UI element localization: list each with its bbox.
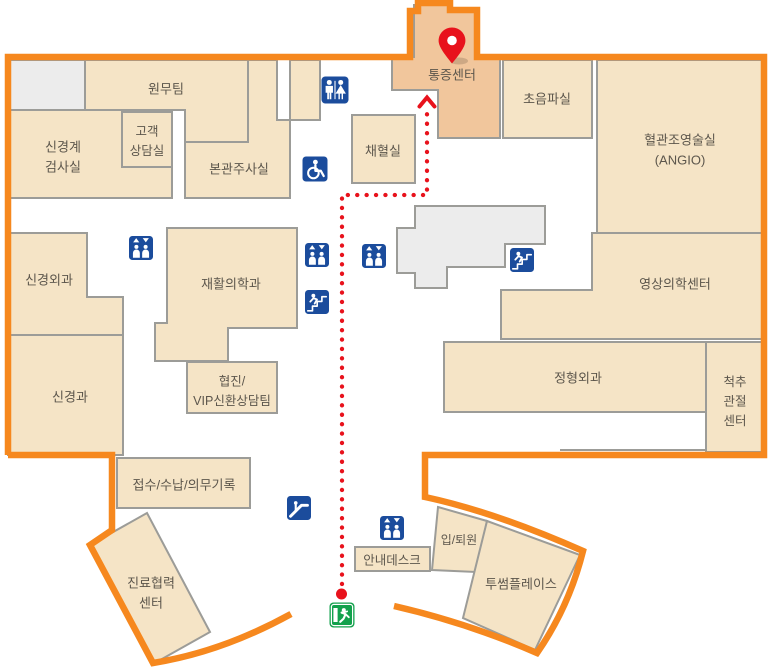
room-label-admission-discharge: 입/퇴원 (441, 533, 477, 547)
room-small-room-top (290, 60, 320, 120)
room-label-neurosurgery: 신경외과 (25, 273, 73, 288)
room-label-spine-joint-center: 척추관절센터 (723, 375, 746, 428)
room-label-reception-payment-records: 접수/수납/의무기록 (133, 478, 236, 493)
floor-map-svg: 원무팀본관주사실신경계검사실고객상담실채혈실통증센터초음파실혈관조영술실(ANG… (0, 0, 772, 670)
room-customer-consult-room: 고객상담실 (122, 112, 172, 167)
room-rehabilitation-medicine: 재활의학과 (155, 228, 297, 361)
elevator-icon-3 (362, 244, 386, 268)
room-label-neurology: 신경과 (52, 390, 88, 405)
room-reception-payment-records: 접수/수납/의무기록 (117, 458, 250, 508)
restroom-icon (322, 77, 349, 104)
escalator-icon (287, 496, 311, 520)
room-neurology: 신경과 (8, 335, 123, 455)
route-start-dot (336, 589, 347, 600)
room-label-admin-team: 원무팀 (148, 82, 184, 97)
room-label-imaging-center: 영상의학센터 (639, 277, 711, 292)
exit-icon (330, 603, 355, 628)
room-label-info-desk: 안내데스크 (363, 553, 421, 567)
route-arrow-icon (420, 98, 435, 107)
room-label-blood-collection-room: 채혈실 (365, 144, 401, 159)
room-label-pain-center: 통증센터 (428, 68, 476, 83)
stairs-icon-1 (305, 290, 329, 314)
elevator-icon-2 (305, 243, 329, 267)
room-angio-room: 혈관조영술실(ANGIO) (597, 60, 762, 233)
room-imaging-center: 영상의학센터 (501, 233, 762, 339)
room-blood-collection-room: 채혈실 (352, 115, 415, 183)
room-label-rehabilitation-medicine: 재활의학과 (201, 277, 261, 292)
room-label-ultrasound-room: 초음파실 (523, 92, 571, 107)
stairs-icon-2 (510, 248, 534, 272)
room-ultrasound-room: 초음파실 (503, 60, 592, 138)
elevator-icon-1 (129, 236, 153, 260)
elevator-icon-4 (380, 516, 404, 540)
room-spine-joint-center: 척추관절센터 (706, 342, 762, 452)
room-cooperation-vip-team: 협진/VIP신환상담팀 (187, 362, 277, 413)
room-label-twosome-place: 투썸플레이스 (485, 577, 557, 592)
room-label-orthopedics: 정형외과 (554, 371, 602, 386)
wheelchair-icon (303, 157, 328, 182)
room-info-desk: 안내데스크 (355, 547, 430, 571)
room-grey-room-topleft (8, 60, 85, 110)
room-orthopedics: 정형외과 (444, 342, 706, 412)
room-grey-area-center (397, 206, 545, 288)
room-neurosurgery: 신경외과 (8, 233, 123, 335)
room-label-main-injection-room: 본관주사실 (209, 162, 269, 177)
hospital-floor-map: 원무팀본관주사실신경계검사실고객상담실채혈실통증센터초음파실혈관조영술실(ANG… (0, 0, 772, 670)
